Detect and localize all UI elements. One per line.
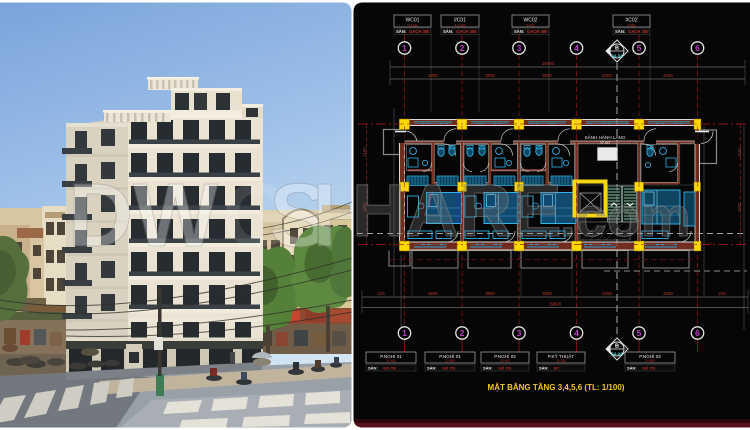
svg-text:12 M2: 12 M2 (556, 359, 566, 363)
svg-text:3800: 3800 (485, 291, 495, 296)
svg-text:22 M2: 22 M2 (500, 359, 510, 363)
svg-text:.com: .com (560, 185, 691, 248)
svg-text:32 M2: 32 M2 (600, 141, 611, 145)
svg-text:3800: 3800 (428, 73, 438, 78)
svg-text:3800: 3800 (542, 73, 552, 78)
svg-text:SÀN:: SÀN: (427, 366, 437, 371)
svg-text:1: 1 (402, 328, 407, 338)
svg-text:W: W (133, 166, 218, 266)
svg-text:SÀN:: SÀN: (483, 366, 493, 371)
svg-text:3800: 3800 (542, 291, 552, 296)
svg-text:GỖ CN: GỖ CN (383, 366, 396, 371)
svg-text:SÀN:: SÀN: (514, 29, 524, 34)
svg-text:SÀN:: SÀN: (539, 366, 549, 371)
svg-text:GẠCH 300: GẠCH 300 (628, 29, 649, 34)
svg-text:4000: 4000 (737, 202, 742, 212)
svg-text:5 M2: 5 M2 (527, 24, 535, 28)
svg-text:SÀN:: SÀN: (443, 29, 453, 34)
svg-text:P.NGHỈ 01: P.NGHỈ 01 (439, 353, 461, 359)
svg-text:5: 5 (637, 43, 642, 53)
svg-text:B: B (615, 344, 619, 350)
svg-text:D: D (68, 166, 133, 266)
svg-text:19400: 19400 (542, 61, 555, 66)
svg-text:3: 3 (517, 43, 522, 53)
svg-text:4.5 M2: 4.5 M2 (407, 24, 418, 28)
svg-text:MẶT BẰNG TẦNG 3,4,5,6 (TL: 1/1: MẶT BẰNG TẦNG 3,4,5,6 (TL: 1/100) (488, 382, 625, 392)
svg-text:4.5 M2: 4.5 M2 (455, 24, 466, 28)
svg-text:3800: 3800 (428, 291, 438, 296)
svg-text:P.NGHỈ 02: P.NGHỈ 02 (639, 353, 661, 359)
svg-text:GỖ CN: GỖ CN (498, 366, 511, 371)
svg-text:B: B (615, 46, 619, 52)
svg-text:5 M2: 5 M2 (628, 24, 636, 28)
svg-text:SÀN:: SÀN: (615, 29, 625, 34)
svg-text:2: 2 (460, 328, 465, 338)
svg-text:3: 3 (517, 328, 522, 338)
svg-text:4: 4 (574, 43, 579, 53)
svg-text:3400: 3400 (663, 291, 673, 296)
svg-text:5: 5 (637, 328, 642, 338)
svg-text:GỖ CN: GỖ CN (442, 366, 455, 371)
svg-text:GẠCH 300: GẠCH 300 (527, 29, 548, 34)
svg-text:GỖ CN: GỖ CN (642, 366, 655, 371)
svg-text:22 M2: 22 M2 (445, 359, 455, 363)
svg-text:216: 216 (718, 291, 726, 296)
svg-text:HARE: HARE (352, 169, 562, 252)
svg-text:19800: 19800 (549, 302, 562, 307)
svg-text:04-04: 04-04 (611, 352, 623, 357)
svg-text:216: 216 (377, 291, 385, 296)
svg-text:SẢNH HÀNH LANG: SẢNH HÀNH LANG (585, 134, 626, 140)
svg-text:GẠCH 300: GẠCH 300 (456, 29, 477, 34)
svg-text:2: 2 (460, 43, 465, 53)
svg-text:4200: 4200 (602, 291, 612, 296)
svg-text:4: 4 (574, 328, 579, 338)
svg-text:4150: 4150 (737, 147, 742, 157)
svg-text:4150: 4150 (362, 147, 367, 157)
svg-text:6: 6 (695, 43, 700, 53)
svg-text:P.NGHỈ 01: P.NGHỈ 01 (380, 353, 402, 359)
svg-text:SÀN:: SÀN: (368, 366, 378, 371)
svg-text:SÀN:: SÀN: (396, 29, 406, 34)
svg-text:1: 1 (402, 43, 407, 53)
svg-text:BT: BT (554, 366, 560, 371)
svg-text:GẠCH 300: GẠCH 300 (409, 29, 430, 34)
svg-text:3400: 3400 (663, 73, 673, 78)
svg-text:6: 6 (695, 328, 700, 338)
svg-text:SÀN:: SÀN: (627, 366, 637, 371)
svg-text:P.NGHỈ 02: P.NGHỈ 02 (494, 353, 516, 359)
svg-text:4200: 4200 (602, 73, 612, 78)
svg-text:P.KỸ THUẬT: P.KỸ THUẬT (548, 353, 575, 359)
svg-text:04-04: 04-04 (611, 54, 623, 59)
svg-text:22 M2: 22 M2 (386, 359, 396, 363)
svg-text:3800: 3800 (485, 73, 495, 78)
svg-text:24 M2: 24 M2 (645, 359, 655, 363)
